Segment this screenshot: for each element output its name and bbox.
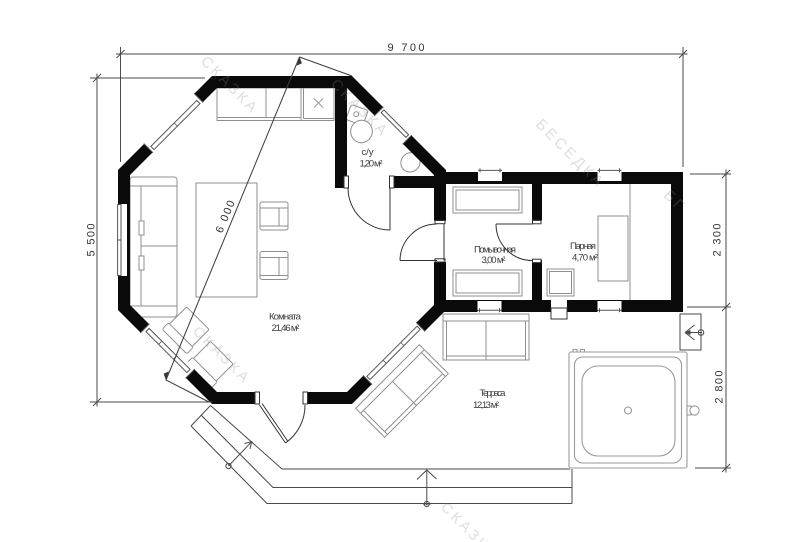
svg-text:1,20 м²: 1,20 м² [360, 159, 384, 170]
svg-text:9 700: 9 700 [388, 42, 425, 54]
svg-text:Комната: Комната [269, 312, 302, 323]
svg-text:Терраса: Терраса [480, 388, 507, 399]
svg-text:21,46 м²: 21,46 м² [272, 323, 301, 334]
svg-text:с/у: с/у [362, 147, 374, 158]
svg-text:5 500: 5 500 [86, 224, 98, 257]
svg-text:4,70 м²: 4,70 м² [572, 253, 599, 264]
svg-text:2 300: 2 300 [712, 224, 724, 257]
svg-text:Парная: Парная [570, 241, 596, 252]
svg-text:2 800: 2 800 [714, 371, 726, 404]
svg-text:3,00 м²: 3,00 м² [482, 255, 507, 266]
svg-text:Помывочная: Помывочная [474, 245, 516, 256]
svg-text:12,13 м²: 12,13 м² [473, 400, 500, 411]
